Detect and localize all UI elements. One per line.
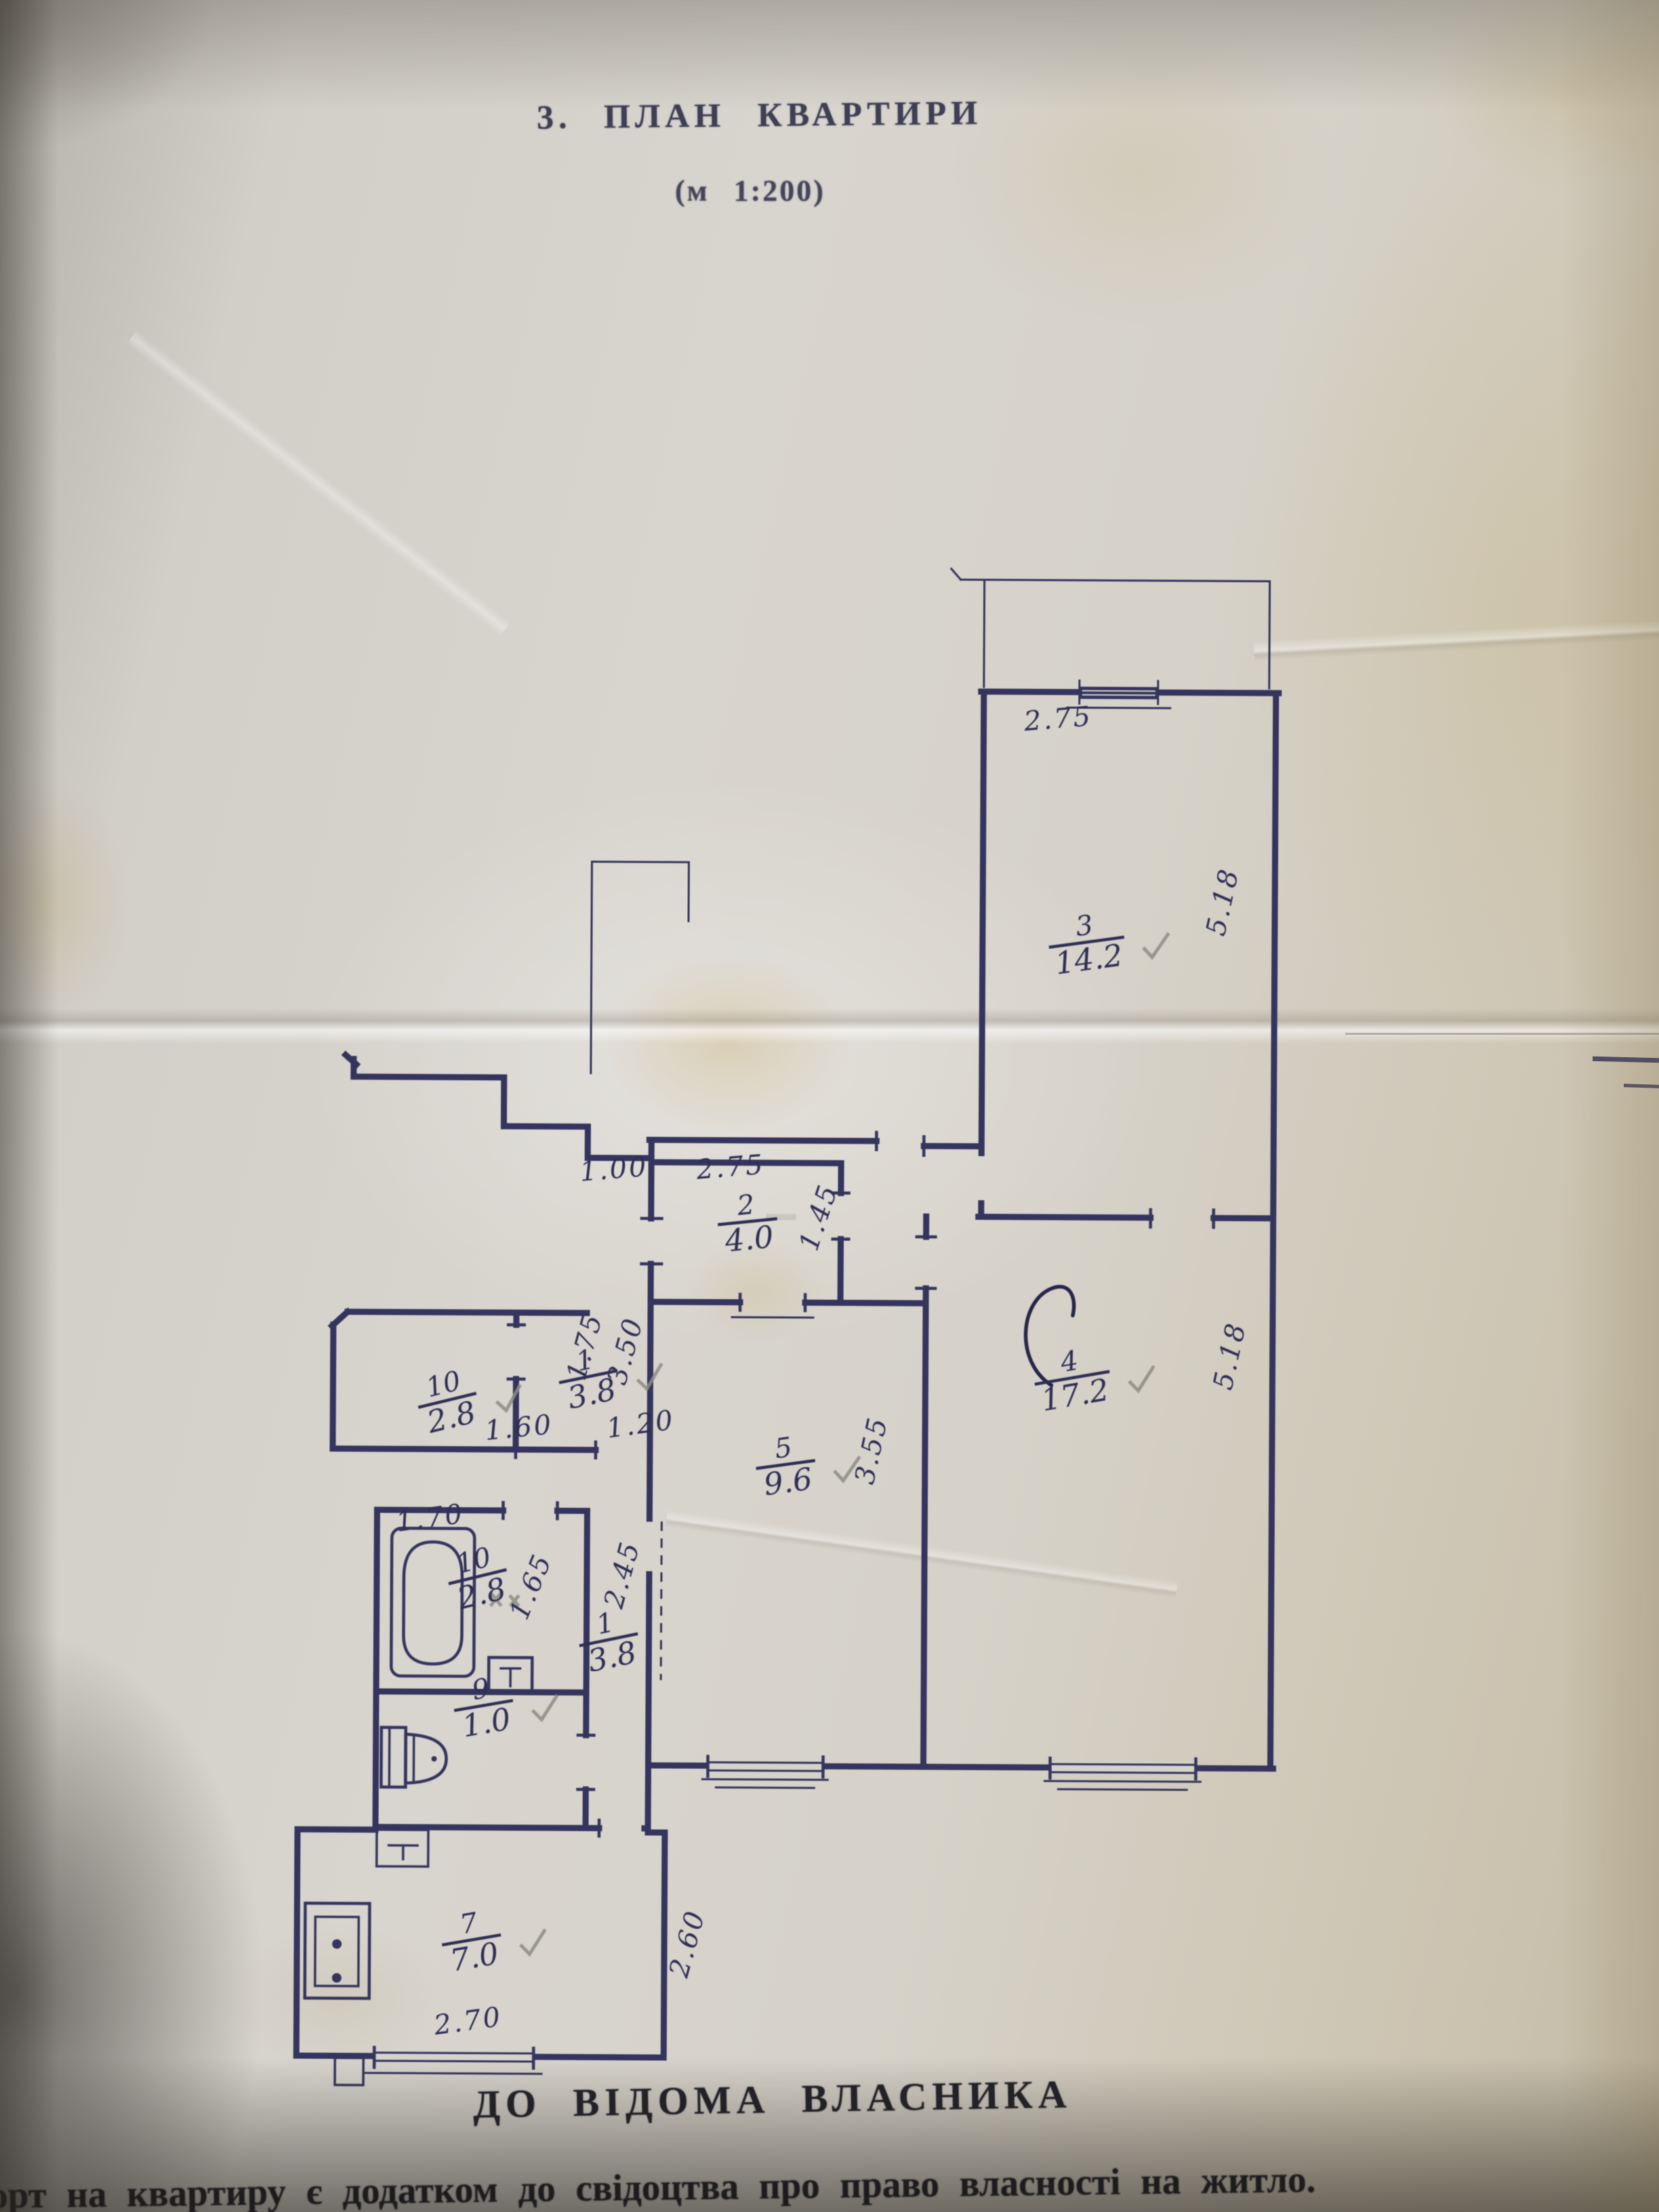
svg-text:9.6: 9.6 xyxy=(762,1460,815,1502)
svg-text:2.75: 2.75 xyxy=(1022,701,1093,737)
stove-icon xyxy=(305,1903,370,1998)
stray-ink-mark xyxy=(1624,1084,1659,1088)
svg-text:3.55: 3.55 xyxy=(849,1414,894,1488)
svg-text:1.65: 1.65 xyxy=(504,1549,558,1624)
dimension-corridor-width: 1.20 xyxy=(605,1404,676,1444)
svg-text:2.60: 2.60 xyxy=(663,1906,712,1982)
handwritten-labels: 314.224.013.8102.859.6417.2102.891.013.8… xyxy=(391,697,1256,2046)
dimension-room3-width: 2.75 xyxy=(1022,701,1093,737)
room-label-room-2: 24.0 xyxy=(715,1187,781,1260)
dimension-room4-depth: 5.18 xyxy=(1208,1319,1252,1393)
footer-heading: ДО ВІДОМА ВЛАСНИКА xyxy=(472,2071,1072,2127)
dimension-bath-width: 1.70 xyxy=(394,1498,466,1538)
scale-note: (м 1:200) xyxy=(675,173,825,208)
window-kitchen xyxy=(374,2046,533,2070)
photographed-document-page: 3. ПЛАН КВАРТИРИ (м 1:200) xyxy=(0,0,1659,2212)
svg-text:1.60: 1.60 xyxy=(483,1409,554,1447)
floor-plan-drawing: 314.224.013.8102.859.6417.2102.891.013.8… xyxy=(253,519,1319,2104)
svg-text:5.18: 5.18 xyxy=(1208,1319,1252,1393)
faint-pencil-line xyxy=(1345,1033,1659,1035)
page-title: 3. ПЛАН КВАРТИРИ xyxy=(537,93,983,137)
svg-text:5: 5 xyxy=(773,1432,794,1465)
svg-text:5.18: 5.18 xyxy=(1200,865,1245,939)
dimension-storeroom-width: 1.60 xyxy=(483,1409,554,1447)
svg-text:2.45: 2.45 xyxy=(598,1538,647,1613)
window-room3 xyxy=(1080,680,1158,704)
threshold-box xyxy=(335,2058,363,2085)
dimension-kitchen-depth: 2.60 xyxy=(663,1906,712,1982)
svg-text:3: 3 xyxy=(1073,909,1094,943)
svg-text:14.2: 14.2 xyxy=(1052,937,1124,982)
svg-text:4.0: 4.0 xyxy=(722,1218,775,1259)
room-label-kitchen-7: 77.0 xyxy=(436,1896,550,1980)
window-room4 xyxy=(1050,1757,1195,1780)
pencil-check-mark xyxy=(518,1929,549,1955)
svg-text:1: 1 xyxy=(594,1607,617,1641)
svg-text:3.50: 3.50 xyxy=(602,1314,650,1389)
sink-icon xyxy=(489,1658,532,1692)
building-outline-thin xyxy=(365,566,1270,2078)
room-label-bathroom-10: 102.8 xyxy=(441,1538,515,1618)
pencil-check-mark xyxy=(1127,1366,1158,1392)
svg-text:2.75: 2.75 xyxy=(695,1149,766,1186)
svg-text:4: 4 xyxy=(1058,1345,1081,1379)
svg-text:1.0: 1.0 xyxy=(459,1701,513,1744)
svg-text:1.45: 1.45 xyxy=(794,1180,844,1254)
dimension-room2-width: 2.75 xyxy=(695,1149,766,1186)
vent-box-icon xyxy=(377,1830,428,1866)
dimension-corridor-len: 3.50 xyxy=(602,1314,650,1389)
pencil-check-mark xyxy=(531,1695,561,1721)
pencil-check-mark xyxy=(1142,933,1172,958)
svg-text:1.20: 1.20 xyxy=(605,1404,676,1444)
door-jamb-ticks xyxy=(501,1129,1214,1841)
toilet-icon xyxy=(381,1727,446,1788)
svg-text:2.70: 2.70 xyxy=(432,2001,504,2041)
svg-text:7: 7 xyxy=(457,1907,480,1941)
svg-text:17.2: 17.2 xyxy=(1038,1372,1111,1418)
svg-text:1.00: 1.00 xyxy=(579,1151,649,1188)
window-room5 xyxy=(708,1755,823,1778)
dimension-room2-depth: 1.45 xyxy=(794,1180,844,1254)
stray-ink-mark xyxy=(1593,1057,1659,1063)
room-label-room-3: 314.2 xyxy=(1044,899,1173,982)
pencil-check-mark xyxy=(494,1385,525,1412)
dimension-room5-depth: 3.55 xyxy=(849,1414,894,1488)
dimension-corridor2-len: 2.45 xyxy=(598,1538,647,1613)
dimension-bath-depth: 1.65 xyxy=(504,1549,558,1624)
svg-text:7.0: 7.0 xyxy=(447,1935,501,1979)
room-label-wc-9: 91.0 xyxy=(449,1662,562,1746)
svg-text:3.8: 3.8 xyxy=(585,1634,640,1679)
room-label-room-4: 417.2 xyxy=(1029,1332,1160,1419)
dimension-room3-depth: 5.18 xyxy=(1200,865,1245,939)
dimension-kitchen-width: 2.70 xyxy=(432,2001,504,2041)
room-label-room-5: 59.6 xyxy=(752,1423,864,1504)
footer-text-clipped: орт на квартиру є додатком до свідоцтва … xyxy=(0,2158,1316,2212)
dimension-entry-width: 1.00 xyxy=(579,1151,649,1188)
door-swing-dashed-line xyxy=(661,1521,661,1680)
svg-text:1.70: 1.70 xyxy=(394,1498,466,1538)
floor-plan: 314.224.013.8102.859.6417.2102.891.013.8… xyxy=(253,519,1319,2104)
svg-text:2: 2 xyxy=(735,1189,756,1222)
